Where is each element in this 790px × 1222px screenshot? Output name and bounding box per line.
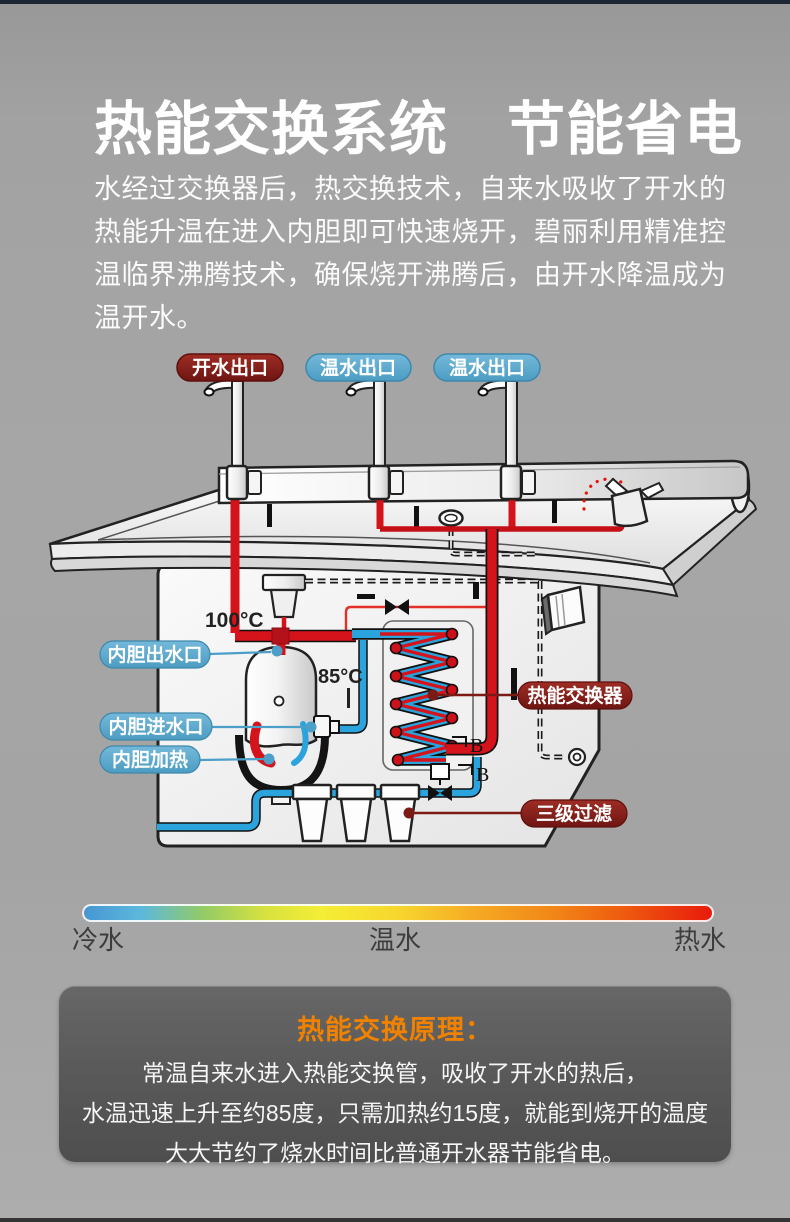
principle-text: 常温自来水进入热能交换管，吸收了开水的热后， 水温迅速上升至约85度，只需加热约…: [59, 1053, 731, 1173]
pipe-bracket: [473, 582, 479, 599]
outlet-pill-warm-2: 温水出口: [434, 354, 540, 381]
temp-boiling: 100°C: [205, 609, 264, 632]
pointer-dot: [404, 808, 415, 819]
tank-sensor-dot: [275, 697, 284, 706]
legend-cold: 冷水: [72, 920, 124, 957]
marker-b-lower: B: [476, 764, 489, 786]
svg-text:内胆进水口: 内胆进水口: [108, 715, 203, 738]
faucet-boiling: [205, 381, 262, 499]
principle-line: 大大节约了烧水时间比普通开水器节能省电。: [59, 1133, 731, 1173]
temp-tick: [347, 688, 350, 708]
principle-title: 热能交换原理：: [59, 1008, 731, 1047]
pointer-dot: [264, 754, 275, 765]
pointer-dot: [428, 690, 439, 701]
pointer-dot: [272, 646, 283, 657]
bottom-border: [0, 1218, 790, 1222]
gauge-mark: [357, 594, 375, 599]
outlet-label: 开水出口: [192, 356, 268, 379]
outlet-pill-warm-1: 温水出口: [306, 354, 411, 381]
pointer-dot: [306, 722, 317, 733]
legend-hot: 热水: [674, 920, 726, 957]
principle-panel: 热能交换原理： 常温自来水进入热能交换管，吸收了开水的热后， 水温迅速上升至约8…: [59, 986, 731, 1162]
outlet-labels: 开水出口 温水出口 温水出口: [177, 354, 540, 381]
outlet-label: 温水出口: [449, 356, 525, 379]
outlet-label: 温水出口: [320, 356, 396, 379]
marker-b-upper: B: [470, 735, 483, 757]
drain-fitting: [440, 511, 463, 526]
temperature-legend: 冷水 温水 热水: [0, 920, 790, 954]
svg-text:内胆出水口: 内胆出水口: [107, 643, 202, 666]
outlet-pill-boiling: 开水出口: [177, 354, 283, 381]
pipe-junction: [272, 628, 289, 644]
drain-outlet-icon: [569, 749, 585, 765]
counter-tick: [414, 506, 419, 529]
svg-text:三级过滤: 三级过滤: [536, 802, 612, 825]
temp-preheated: 85°C: [318, 666, 363, 688]
svg-text:热能交换器: 热能交换器: [527, 684, 623, 707]
svg-text:内胆加热: 内胆加热: [112, 748, 188, 771]
counter-tick: [552, 500, 557, 523]
principle-line: 水温迅速上升至约85度，只需加热约15度，就能到烧开的温度: [59, 1093, 731, 1133]
legend-warm: 温水: [369, 920, 421, 957]
principle-line: 常温自来水进入热能交换管，吸收了开水的热后，: [59, 1053, 731, 1093]
counter-tick: [267, 504, 272, 527]
triple-filter-unit: [293, 785, 419, 841]
